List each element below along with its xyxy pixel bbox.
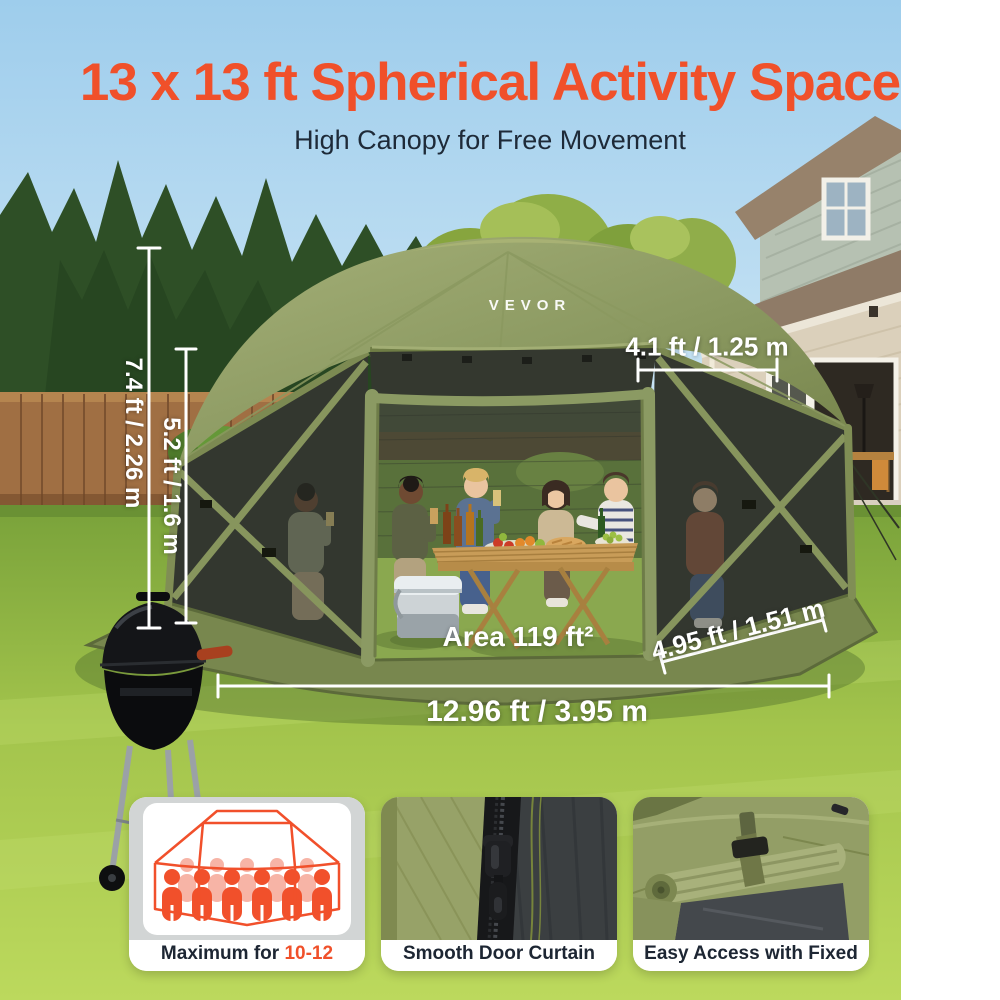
capacity-caption: Maximum for 10-12 People [129, 940, 365, 971]
tent-capacity-icon [143, 803, 351, 935]
rolled-door-strap-image [633, 797, 869, 940]
feature-card-zippers: Smooth Door Curtain Zippers [381, 797, 617, 971]
zipper-closeup-image [381, 797, 617, 940]
feature-card-straps: Easy Access with Fixed Straps [633, 797, 869, 971]
vevor-logo: VEVOR [470, 297, 590, 314]
capacity-icon-area [129, 797, 365, 940]
straps-caption: Easy Access with Fixed Straps [633, 940, 869, 971]
feature-card-capacity: Maximum for 10-12 People [129, 797, 365, 971]
zippers-caption: Smooth Door Curtain Zippers [381, 940, 617, 971]
product-infographic: VEVOR 7.4 ft / 2.26 m 5.2 ft / 1.6 m 4.1… [0, 0, 1000, 1000]
